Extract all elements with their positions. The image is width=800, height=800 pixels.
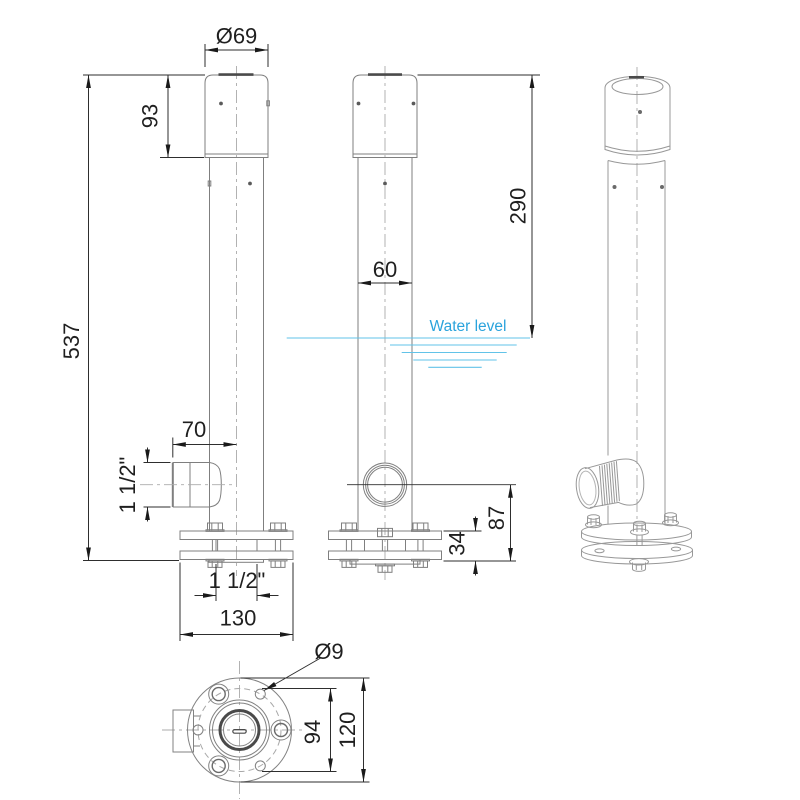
dim-label-outlet-projection: 70 <box>182 417 206 442</box>
bottom-view <box>162 661 306 799</box>
pictorial-view <box>574 67 693 571</box>
center-slot <box>233 730 246 734</box>
dim-label-cap-diameter: Ø69 <box>216 24 258 49</box>
pictorial-outlet <box>574 459 644 510</box>
flange-bolt <box>206 523 224 567</box>
cap-screw <box>357 102 361 106</box>
dim-label-base-diameter: 120 <box>335 712 360 749</box>
pictorial-flange <box>582 513 693 572</box>
dim-label-outlet-thread: 1 1/2" <box>115 457 140 514</box>
dim-label-flange-stack-height: 34 <box>445 531 470 555</box>
cap-screw <box>412 102 416 106</box>
water-level: Water level <box>287 318 530 367</box>
front-outlet <box>140 463 232 508</box>
flange-hole <box>595 549 604 553</box>
dimensions: Ø69 93 537 290 60 70 <box>59 24 540 783</box>
technical-drawing: Water level <box>0 0 800 800</box>
dim-hole-diameter-leader <box>264 658 322 691</box>
pictorial-tube <box>608 161 665 525</box>
dim-label-bolt-circle: 94 <box>300 720 325 744</box>
tube-screw <box>660 185 664 189</box>
water-level-label: Water level <box>430 318 507 335</box>
dim-label-hole-diameter: Ø9 <box>314 639 343 664</box>
bolt-hole <box>255 689 265 699</box>
middle-view <box>329 66 442 580</box>
dim-label-cap-height: 93 <box>138 104 163 128</box>
flange-hole <box>671 547 680 551</box>
outlet-threads <box>600 461 620 506</box>
bottom-outlet <box>173 710 200 752</box>
cap-screw <box>219 102 223 106</box>
tube-screw <box>383 182 387 186</box>
cap-screw <box>638 110 642 114</box>
dim-total-height <box>83 75 205 561</box>
dim-label-total-height: 537 <box>59 323 84 360</box>
pictorial-cap <box>605 76 670 155</box>
dim-label-flange-width: 130 <box>220 606 257 631</box>
dim-label-base-thread: 1 1/2" <box>209 568 266 593</box>
dim-label-top-to-water: 290 <box>506 188 531 225</box>
front-tube <box>208 158 263 532</box>
flange-bolt <box>340 523 358 567</box>
bottom-bolt <box>209 756 229 776</box>
tube-screw <box>248 182 252 186</box>
drawing-page: Water level <box>0 0 800 800</box>
front-cap <box>205 75 269 158</box>
dim-label-tube-diameter: 60 <box>373 257 397 282</box>
dim-label-outlet-height: 87 <box>484 506 509 530</box>
dim-cap-height <box>160 75 204 158</box>
flange-bolt <box>269 523 287 567</box>
front-view <box>140 66 293 576</box>
flange-bolt <box>412 523 430 567</box>
tube-screw <box>613 185 617 189</box>
